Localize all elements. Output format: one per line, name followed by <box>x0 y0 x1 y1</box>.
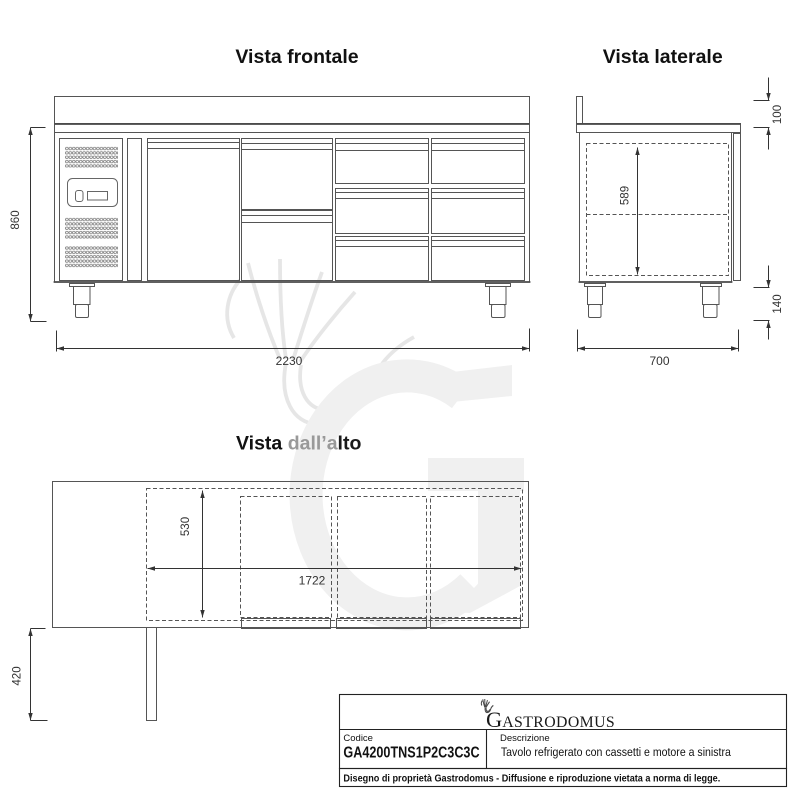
svg-text:Disegno di proprietà Gastrodom: Disegno di proprietà Gastrodomus - Diffu… <box>343 773 720 784</box>
svg-text:860: 860 <box>10 210 22 229</box>
svg-text:2230: 2230 <box>276 354 303 368</box>
svg-text:Tavolo refrigerato con cassett: Tavolo refrigerato con cassetti e motore… <box>501 746 732 759</box>
svg-text:530: 530 <box>180 517 192 536</box>
svg-text:420: 420 <box>12 666 24 685</box>
svg-text:GASTRODOMUS: GASTRODOMUS <box>486 707 615 732</box>
svg-text:GA4200TNS1P2C3C3C: GA4200TNS1P2C3C3C <box>343 744 480 762</box>
svg-text:1722: 1722 <box>299 574 326 588</box>
svg-text:Vista frontale: Vista frontale <box>235 46 358 68</box>
svg-text:589: 589 <box>620 186 632 205</box>
svg-text:Descrizione: Descrizione <box>500 733 550 744</box>
svg-text:Codice: Codice <box>343 733 373 744</box>
svg-text:100: 100 <box>772 105 784 124</box>
svg-text:Vista laterale: Vista laterale <box>603 46 723 68</box>
svg-text:700: 700 <box>649 354 669 368</box>
svg-text:Vista dall’alto: Vista dall’alto <box>236 433 361 455</box>
svg-text:140: 140 <box>772 294 784 313</box>
